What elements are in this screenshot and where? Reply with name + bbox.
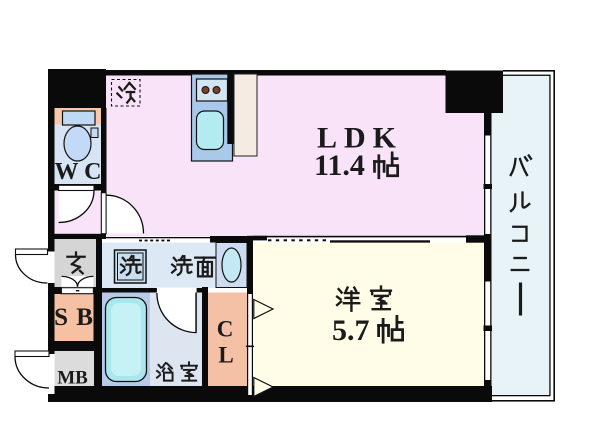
svg-text:L: L bbox=[218, 343, 233, 368]
svg-text:W C: W C bbox=[55, 159, 102, 185]
svg-text:C: C bbox=[217, 317, 234, 342]
svg-text:5.7: 5.7 bbox=[332, 314, 370, 347]
svg-text:MB: MB bbox=[57, 368, 88, 389]
svg-text:11.4: 11.4 bbox=[314, 149, 365, 182]
svg-text:S B: S B bbox=[54, 304, 94, 331]
